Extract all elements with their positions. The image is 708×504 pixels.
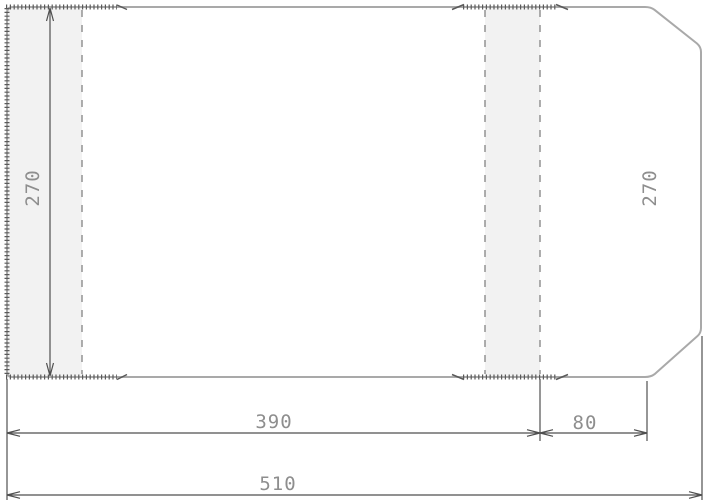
weld-seam-marks-group bbox=[6, 5, 568, 380]
dim-label-height-left: 270 bbox=[22, 169, 44, 206]
dim-label-flap-width: 80 bbox=[573, 412, 598, 434]
spine-seam-panel bbox=[485, 7, 540, 377]
dim-label-main-width: 390 bbox=[255, 411, 292, 433]
dim-label-height-right: 270 bbox=[639, 169, 661, 206]
fold-lines-group bbox=[82, 10, 540, 374]
cover-dimension-drawing: 270 270 390 80 510 bbox=[0, 0, 708, 504]
cover-outline bbox=[7, 7, 701, 377]
dim-label-total-width: 510 bbox=[259, 473, 296, 495]
dimension-lines-group bbox=[7, 8, 702, 500]
drawing-canvas: 270 270 390 80 510 bbox=[0, 0, 708, 504]
dimension-labels-group: 270 270 390 80 510 bbox=[22, 169, 661, 495]
left-flap-panel bbox=[7, 7, 82, 377]
